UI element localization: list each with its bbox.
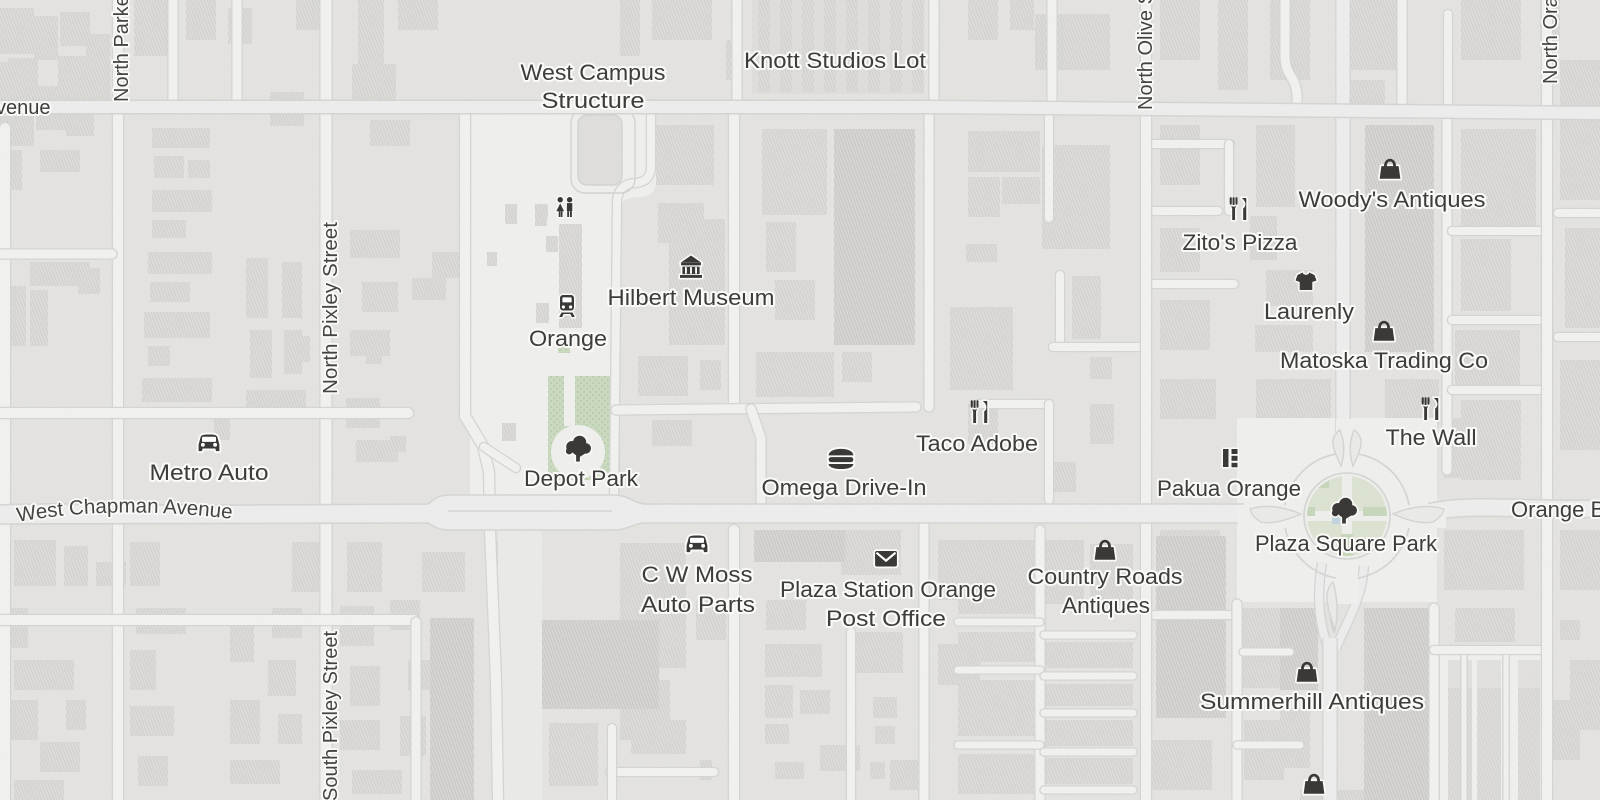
svg-text:North Orange Street: North Orange Street [1540,0,1562,84]
svg-text:Zito's Pizza: Zito's Pizza [1183,230,1299,255]
svg-text:Orange: Orange [529,326,607,351]
svg-text:Plaza Square Park: Plaza Square Park [1255,531,1438,556]
svg-text:Antiques: Antiques [1062,593,1150,618]
svg-text:Metro Auto: Metro Auto [150,460,269,485]
svg-text:Knott Studios Lot: Knott Studios Lot [744,48,926,73]
svg-text:North Street: North Street [0,0,2,95]
svg-text:Plaza Station Orange: Plaza Station Orange [780,577,996,602]
svg-text:Orange B: Orange B [1511,497,1600,522]
svg-text:West Campus: West Campus [521,60,666,85]
svg-text:Matoska Trading Co: Matoska Trading Co [1280,348,1488,373]
svg-text:North Parker Street: North Parker Street [111,0,133,102]
svg-text:Pakua Orange: Pakua Orange [1157,476,1301,501]
svg-text:Laurenly: Laurenly [1264,299,1354,324]
svg-text:Depot Park: Depot Park [524,466,639,491]
svg-text:Auto Parts: Auto Parts [641,592,755,617]
svg-text:South Pixley Street: South Pixley Street [320,631,342,800]
svg-text:C W Moss: C W Moss [642,562,753,587]
svg-text:North Olive Street: North Olive Street [1135,0,1157,110]
svg-text:Taco Adobe: Taco Adobe [916,431,1038,456]
svg-text:Woody's Antiques: Woody's Antiques [1299,187,1486,212]
svg-text:Summerhill Antiques: Summerhill Antiques [1200,689,1424,714]
svg-text:North Pixley Street: North Pixley Street [320,222,342,394]
svg-text:Country Roads: Country Roads [1028,564,1183,589]
svg-text:venue: venue [0,97,51,119]
svg-text:Structure: Structure [542,88,645,113]
svg-text:Hilbert Museum: Hilbert Museum [608,285,775,310]
svg-text:The Wall: The Wall [1386,425,1477,450]
svg-text:Post Office: Post Office [826,606,946,631]
svg-text:Omega Drive-In: Omega Drive-In [762,475,927,500]
